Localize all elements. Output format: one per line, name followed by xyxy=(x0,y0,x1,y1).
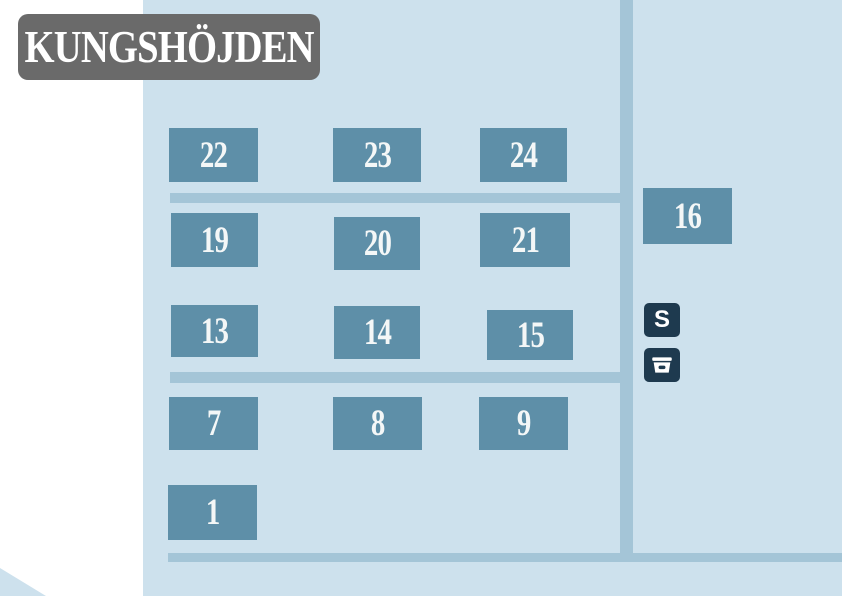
building-19[interactable]: 19 xyxy=(171,213,258,267)
building-number: 21 xyxy=(511,222,538,259)
building-21[interactable]: 21 xyxy=(480,213,570,267)
building-number: 14 xyxy=(363,314,390,351)
building-23[interactable]: 23 xyxy=(333,128,421,182)
storage-box-badge xyxy=(644,348,680,382)
building-24[interactable]: 24 xyxy=(480,128,567,182)
building-number: 9 xyxy=(517,405,531,442)
building-number: 20 xyxy=(363,225,390,262)
storage-box-icon xyxy=(649,352,675,378)
road-bottom xyxy=(168,553,842,562)
building-number: 1 xyxy=(206,494,220,531)
building-7[interactable]: 7 xyxy=(169,397,258,450)
site-map: 22 23 24 16 19 20 21 13 14 15 7 8 9 1 S … xyxy=(0,0,842,596)
building-number: 23 xyxy=(363,137,390,174)
road-middle xyxy=(170,372,620,383)
building-16[interactable]: 16 xyxy=(643,188,732,244)
building-9[interactable]: 9 xyxy=(479,397,568,450)
s-badge: S xyxy=(644,303,680,337)
area-title: KUNGSHÖJDEN xyxy=(24,24,313,70)
building-number: 16 xyxy=(674,198,701,235)
building-22[interactable]: 22 xyxy=(169,128,258,182)
building-number: 8 xyxy=(371,405,385,442)
s-badge-label: S xyxy=(654,308,670,332)
building-number: 22 xyxy=(200,137,227,174)
building-13[interactable]: 13 xyxy=(171,305,258,357)
building-20[interactable]: 20 xyxy=(334,217,420,270)
building-number: 19 xyxy=(201,222,228,259)
building-number: 13 xyxy=(201,313,228,350)
building-8[interactable]: 8 xyxy=(333,397,422,450)
building-number: 7 xyxy=(207,405,221,442)
building-14[interactable]: 14 xyxy=(334,306,420,359)
building-number: 15 xyxy=(516,317,543,354)
area-title-box: KUNGSHÖJDEN xyxy=(18,14,320,80)
building-15[interactable]: 15 xyxy=(487,310,573,360)
road-upper xyxy=(170,193,620,203)
corner-area-shape xyxy=(0,568,46,596)
road-vertical xyxy=(620,0,633,561)
building-1[interactable]: 1 xyxy=(168,485,257,540)
building-number: 24 xyxy=(510,137,537,174)
